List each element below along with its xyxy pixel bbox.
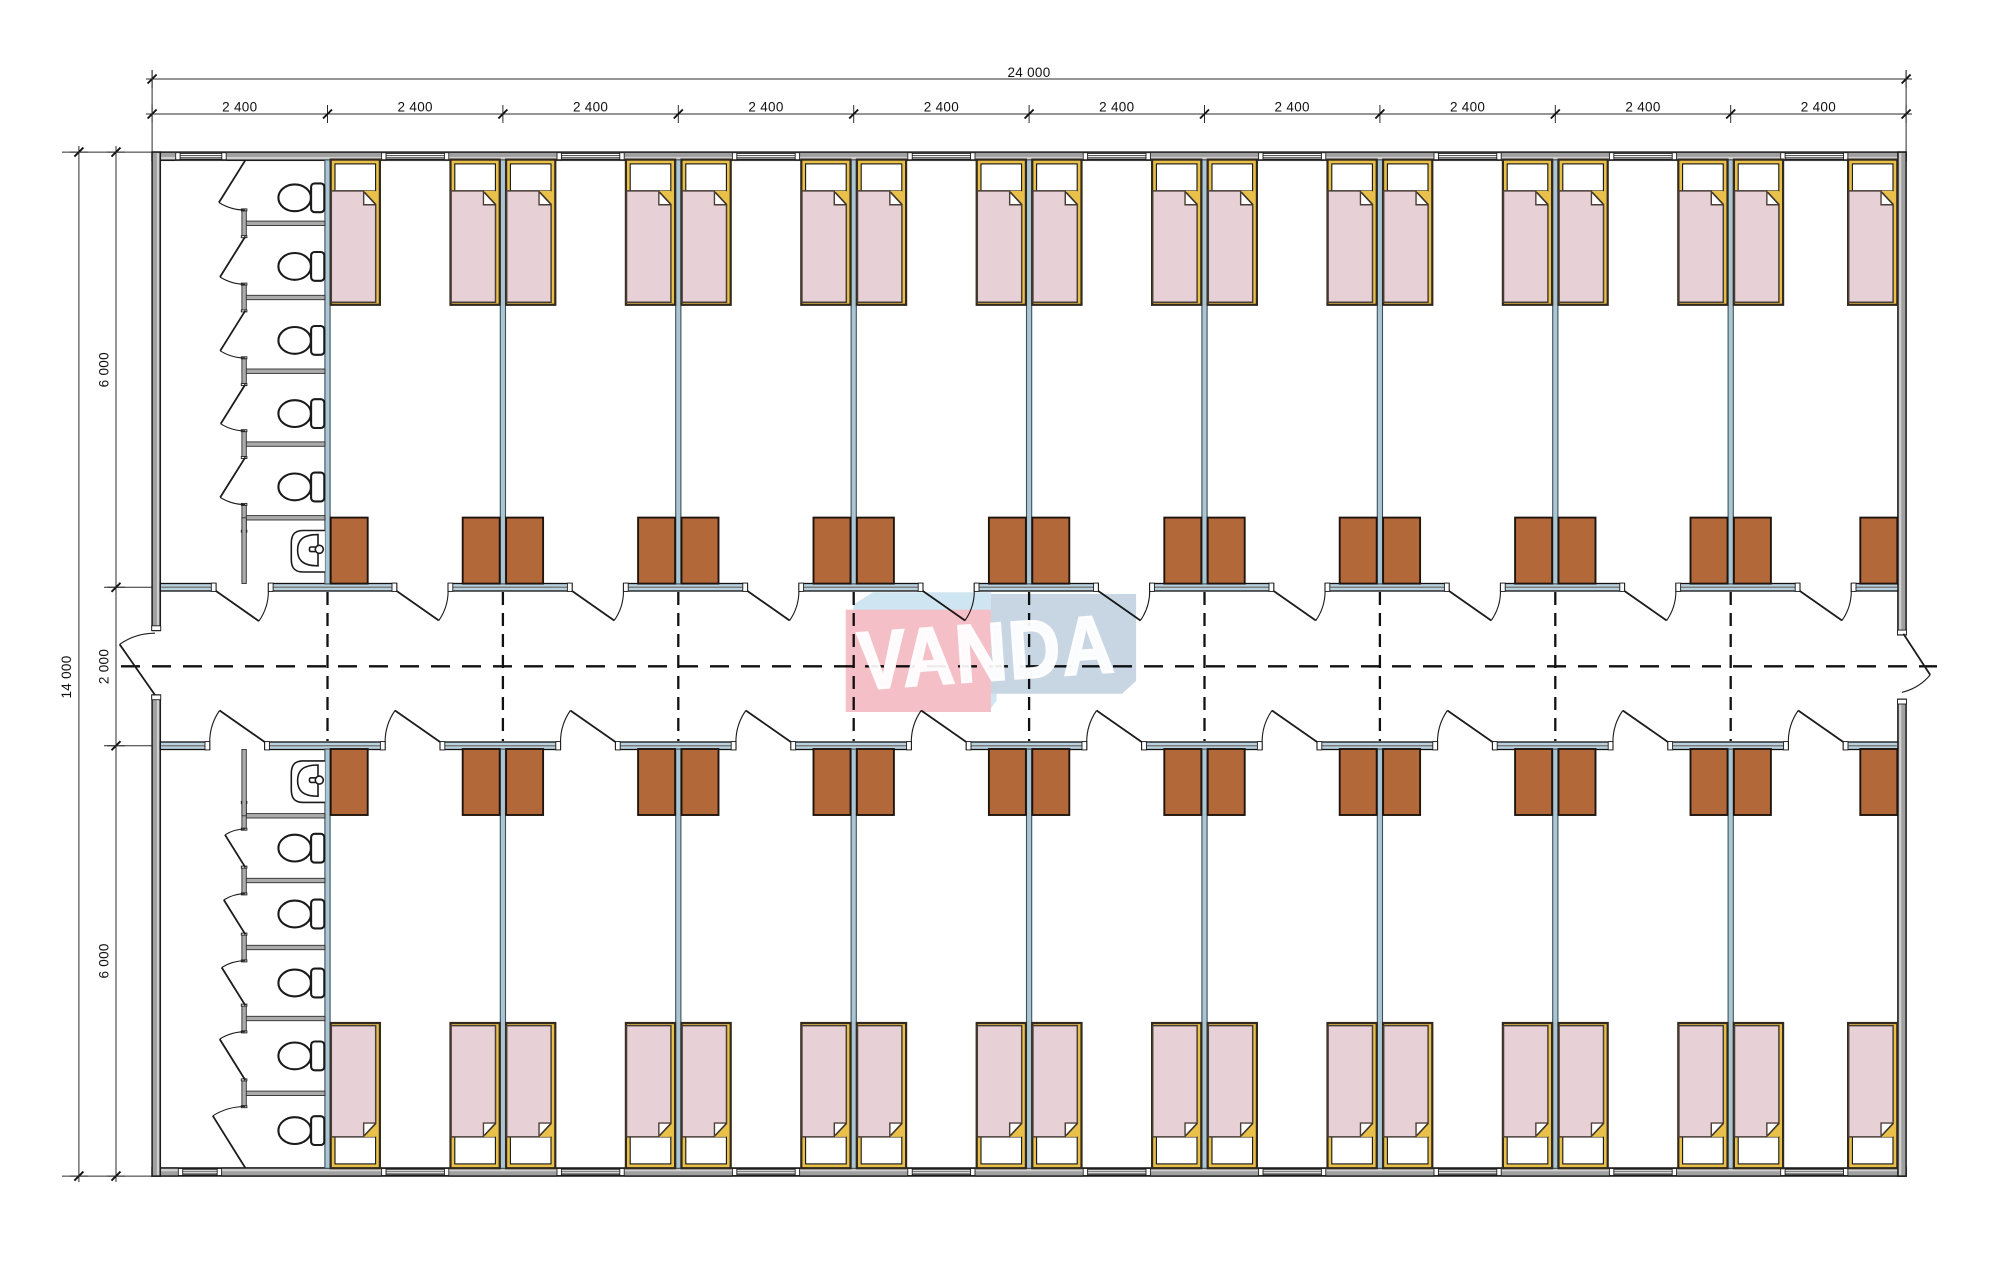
svg-text:6 000: 6 000: [97, 352, 112, 387]
svg-text:2 400: 2 400: [1275, 100, 1310, 115]
svg-text:2 400: 2 400: [398, 100, 433, 115]
svg-text:2 400: 2 400: [748, 100, 783, 115]
svg-text:2 000: 2 000: [97, 649, 112, 684]
svg-text:2 400: 2 400: [222, 100, 257, 115]
svg-text:6 000: 6 000: [97, 943, 112, 978]
svg-text:2 400: 2 400: [924, 100, 959, 115]
svg-text:2 400: 2 400: [573, 100, 608, 115]
svg-text:2 400: 2 400: [1801, 100, 1836, 115]
svg-text:2 400: 2 400: [1450, 100, 1485, 115]
svg-text:14 000: 14 000: [59, 655, 74, 698]
svg-text:2 400: 2 400: [1099, 100, 1134, 115]
svg-text:2 400: 2 400: [1625, 100, 1660, 115]
svg-text:VANDA: VANDA: [855, 598, 1118, 707]
svg-text:24 000: 24 000: [1007, 65, 1050, 80]
